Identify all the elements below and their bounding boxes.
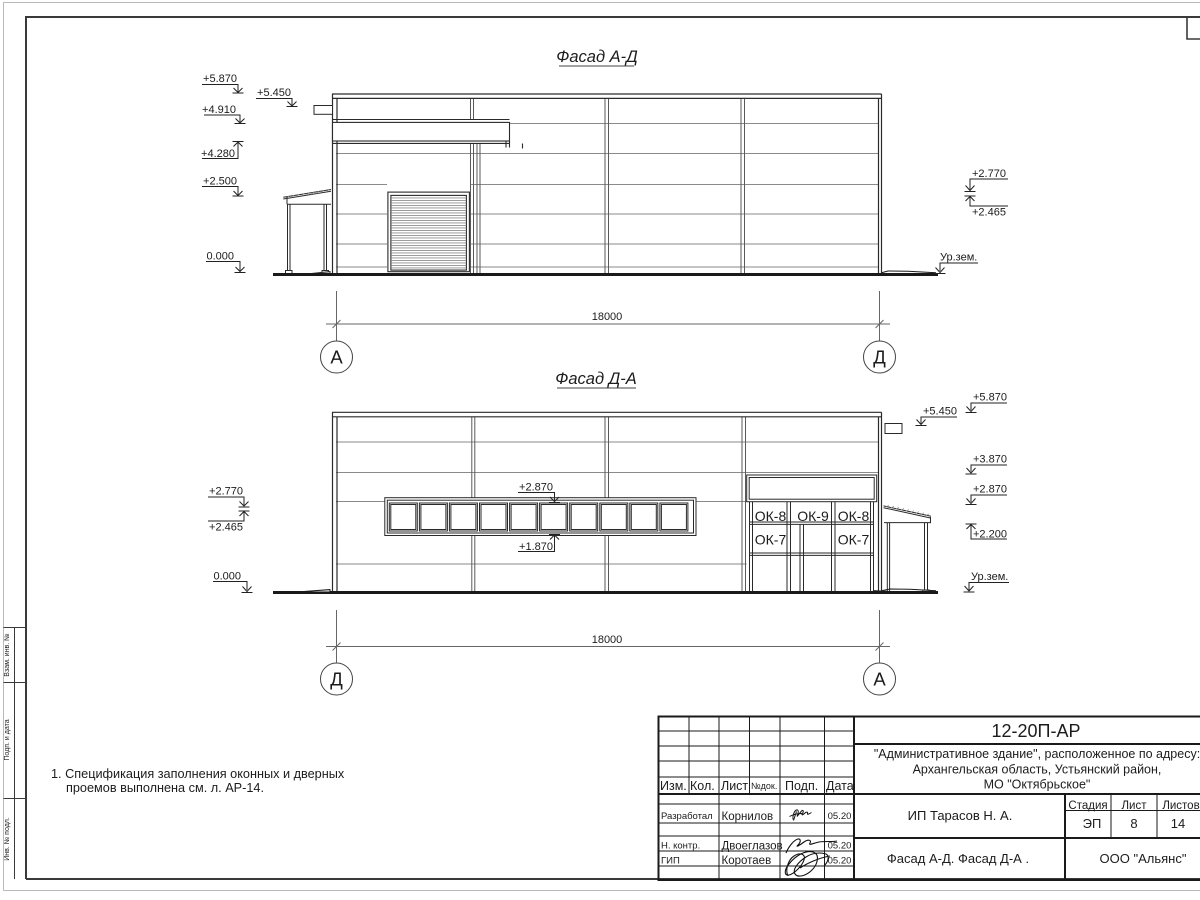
- svg-text:Н. контр.: Н. контр.: [661, 841, 700, 852]
- svg-text:+5.450: +5.450: [923, 406, 957, 418]
- svg-text:Лист: Лист: [1122, 800, 1148, 812]
- svg-text:+5.870: +5.870: [973, 392, 1007, 404]
- svg-text:ОК-7: ОК-7: [755, 532, 787, 548]
- svg-text:+2.770: +2.770: [972, 168, 1006, 180]
- svg-text:ГИП: ГИП: [661, 856, 680, 867]
- svg-text:Изм.: Изм.: [660, 779, 687, 793]
- svg-text:+1.870: +1.870: [519, 541, 553, 553]
- svg-text:ОК-8: ОК-8: [838, 508, 870, 524]
- svg-text:+2.465: +2.465: [972, 207, 1006, 219]
- svg-text:Дата: Дата: [826, 779, 854, 793]
- svg-text:05.20: 05.20: [828, 856, 852, 867]
- svg-text:Коротаев: Коротаев: [722, 855, 772, 867]
- svg-text:+5.450: +5.450: [257, 87, 291, 99]
- svg-text:12-20П-АР: 12-20П-АР: [992, 721, 1081, 741]
- svg-text:№док.: №док.: [751, 781, 777, 791]
- svg-text:05.20: 05.20: [828, 811, 852, 822]
- svg-text:ООО "Альянс": ООО "Альянс": [1100, 851, 1187, 866]
- svg-text:проемов выполнена см. л. АР-14: проемов выполнена см. л. АР-14.: [66, 781, 264, 795]
- svg-text:Стадия: Стадия: [1068, 800, 1107, 812]
- svg-text:ОК-7: ОК-7: [838, 532, 870, 548]
- svg-text:+2.770: +2.770: [209, 486, 243, 498]
- svg-text:Фасад А-Д. Фасад Д-А .: Фасад А-Д. Фасад Д-А .: [887, 851, 1029, 866]
- svg-text:14: 14: [1171, 816, 1185, 831]
- svg-text:Двоеглазов: Двоеглазов: [722, 841, 783, 853]
- svg-text:ЭП: ЭП: [1083, 816, 1102, 831]
- svg-text:Подп. и дата: Подп. и дата: [4, 719, 11, 760]
- svg-text:МО "Октябрьское": МО "Октябрьское": [984, 778, 1091, 792]
- svg-text:Фасад А-Д: Фасад А-Д: [556, 48, 638, 66]
- svg-text:А: А: [873, 669, 886, 690]
- svg-text:Кол.: Кол.: [690, 779, 715, 793]
- svg-text:"Административное здание", рас: "Административное здание", расположенное…: [874, 747, 1200, 761]
- svg-text:05.20: 05.20: [828, 841, 852, 852]
- svg-text:18000: 18000: [592, 634, 623, 646]
- svg-text:18000: 18000: [592, 311, 623, 323]
- svg-text:+2.465: +2.465: [209, 522, 243, 534]
- svg-text:Фасад Д-А: Фасад Д-А: [555, 370, 637, 388]
- svg-text:Ур.зем.: Ур.зем.: [940, 252, 977, 264]
- svg-text:Лист: Лист: [721, 779, 748, 793]
- svg-text:Подп.: Подп.: [785, 779, 818, 793]
- svg-text:0.000: 0.000: [213, 571, 241, 583]
- svg-text:Листов: Листов: [1162, 800, 1199, 812]
- svg-text:0.000: 0.000: [206, 251, 234, 263]
- svg-text:Ур.зем.: Ур.зем.: [971, 571, 1008, 583]
- svg-text:8: 8: [1130, 816, 1137, 831]
- svg-text:+5.870: +5.870: [203, 73, 237, 85]
- svg-text:+2.870: +2.870: [973, 484, 1007, 496]
- svg-text:ОК-9: ОК-9: [797, 508, 829, 524]
- svg-text:Архангельская область, Устьянс: Архангельская область, Устьянский район,: [913, 763, 1162, 777]
- svg-text:Разработал: Разработал: [661, 811, 713, 822]
- svg-text:Инв. № подл.: Инв. № подл.: [4, 817, 11, 861]
- svg-text:А: А: [330, 347, 343, 368]
- svg-text:Д: Д: [330, 669, 343, 690]
- svg-text:+4.910: +4.910: [202, 104, 236, 116]
- svg-text:Корнилов: Корнилов: [722, 811, 774, 823]
- svg-text:1. Спецификация заполнения око: 1. Спецификация заполнения оконных и две…: [51, 767, 345, 781]
- svg-text:ОК-8: ОК-8: [755, 508, 787, 524]
- svg-text:+2.500: +2.500: [203, 176, 237, 188]
- svg-text:+3.870: +3.870: [973, 454, 1007, 466]
- svg-text:+2.870: +2.870: [519, 482, 553, 494]
- svg-text:Д: Д: [873, 347, 886, 368]
- svg-text:Взам. инв. №: Взам. инв. №: [4, 633, 11, 676]
- svg-text:+2.200: +2.200: [973, 529, 1007, 541]
- svg-text:ИП Тарасов Н. А.: ИП Тарасов Н. А.: [908, 808, 1013, 823]
